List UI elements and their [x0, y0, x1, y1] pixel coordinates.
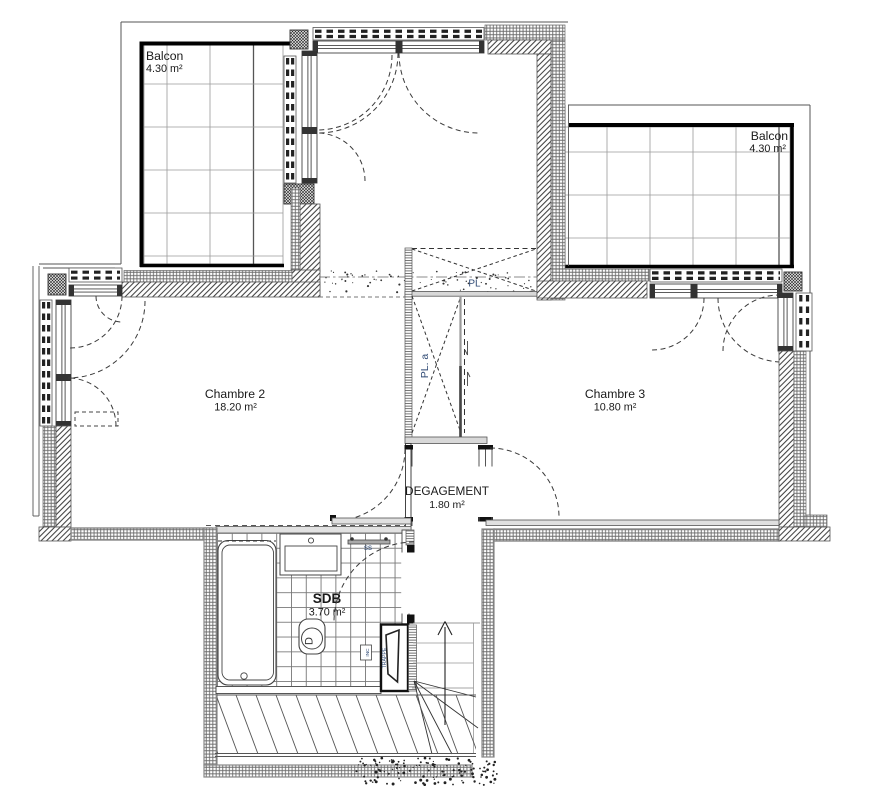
- svg-text:10.80 m²: 10.80 m²: [594, 402, 637, 414]
- svg-text:DEGAGEMENT: DEGAGEMENT: [405, 484, 489, 498]
- svg-text:Balcon: Balcon: [146, 49, 183, 63]
- svg-text:18.20 m²: 18.20 m²: [214, 402, 257, 414]
- svg-text:Balcon: Balcon: [751, 129, 788, 143]
- svg-text:INC: INC: [365, 648, 371, 657]
- svg-text:ss: ss: [364, 543, 372, 552]
- svg-text:4.30 m²: 4.30 m²: [146, 63, 183, 75]
- svg-text:Chambre 2: Chambre 2: [205, 387, 266, 401]
- svg-text:TRAPPE: TRAPPE: [382, 647, 388, 668]
- svg-text:SDB: SDB: [313, 591, 342, 606]
- svg-text:D: D: [304, 637, 316, 645]
- svg-text:4.30 m²: 4.30 m²: [749, 143, 786, 155]
- svg-text:PL. a: PL. a: [419, 354, 431, 379]
- svg-text:Chambre 3: Chambre 3: [585, 387, 646, 401]
- svg-text:PL: PL: [468, 279, 481, 290]
- svg-text:3.70 m²: 3.70 m²: [309, 607, 346, 619]
- svg-text:1.80 m²: 1.80 m²: [429, 499, 465, 511]
